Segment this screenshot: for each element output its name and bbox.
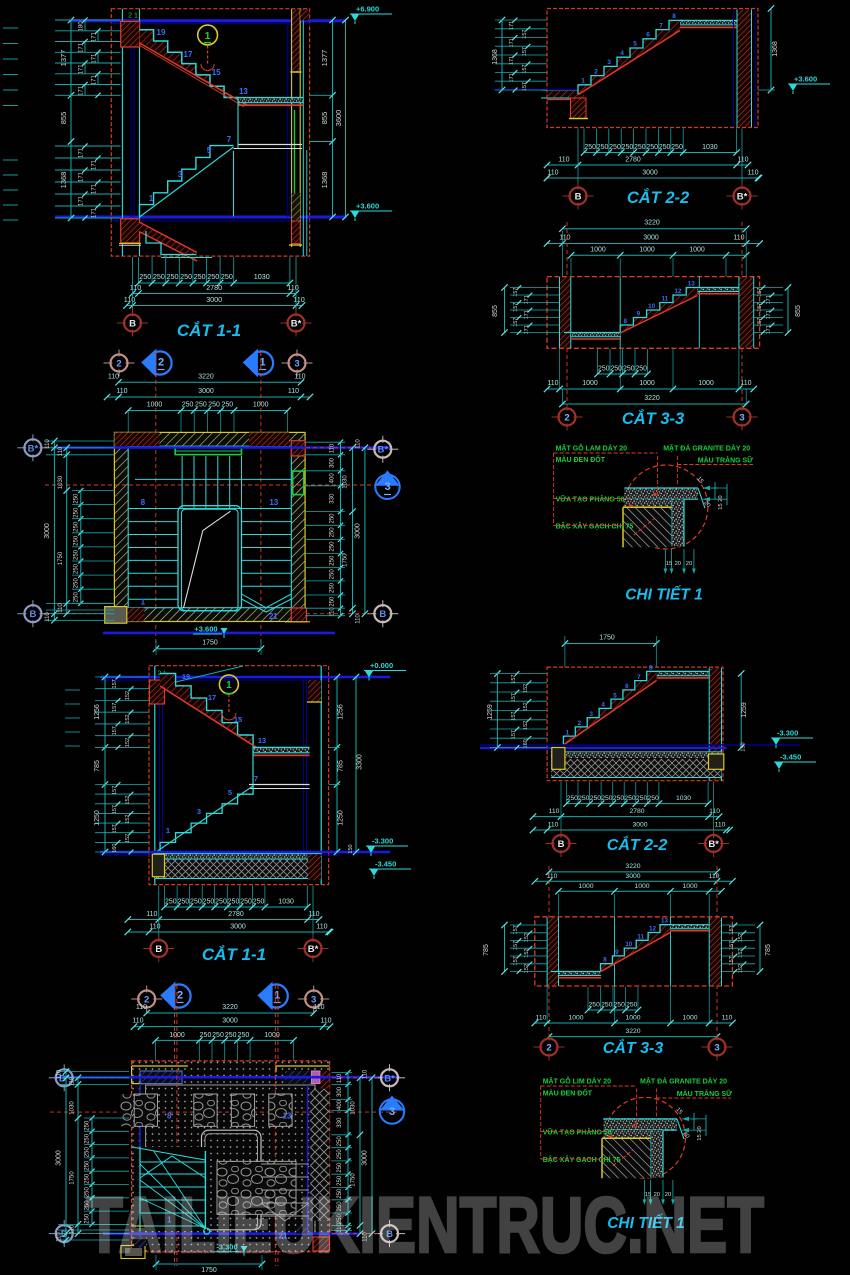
svg-text:110: 110 xyxy=(316,924,327,931)
svg-text:15: 15 xyxy=(666,561,672,567)
svg-text:3: 3 xyxy=(384,481,390,493)
svg-text:250: 250 xyxy=(601,1002,613,1009)
svg-text:9: 9 xyxy=(615,949,619,956)
svg-text:110: 110 xyxy=(559,235,570,242)
svg-text:171: 171 xyxy=(79,64,85,75)
svg-text:2780: 2780 xyxy=(629,808,644,815)
svg-text:110: 110 xyxy=(313,1004,324,1011)
svg-text:157: 157 xyxy=(729,941,735,950)
svg-text:+0.000: +0.000 xyxy=(370,661,393,670)
svg-text:110: 110 xyxy=(308,911,319,918)
svg-text:3300: 3300 xyxy=(357,754,364,770)
svg-text:6: 6 xyxy=(646,32,650,39)
svg-text:BẬC XÂY GẠCH CHỈ 75: BẬC XÂY GẠCH CHỈ 75 xyxy=(556,522,634,531)
svg-text:7: 7 xyxy=(227,135,232,144)
svg-text:110: 110 xyxy=(547,170,558,177)
svg-text:250: 250 xyxy=(584,144,596,151)
svg-text:3220: 3220 xyxy=(625,863,640,870)
svg-text:110: 110 xyxy=(294,373,305,380)
svg-text:250: 250 xyxy=(215,899,227,906)
svg-text:2: 2 xyxy=(158,357,164,369)
svg-text:110: 110 xyxy=(547,380,558,387)
svg-text:250: 250 xyxy=(647,795,659,802)
svg-text:110: 110 xyxy=(549,808,560,815)
svg-text:110: 110 xyxy=(558,157,569,164)
svg-text:250: 250 xyxy=(167,272,179,281)
svg-text:15: 15 xyxy=(212,68,221,77)
svg-text:3220: 3220 xyxy=(644,220,660,227)
svg-text:17: 17 xyxy=(208,693,216,702)
svg-text:250: 250 xyxy=(671,144,683,151)
svg-text:1030: 1030 xyxy=(676,795,691,802)
svg-text:171: 171 xyxy=(766,310,772,319)
svg-text:110: 110 xyxy=(320,1018,331,1025)
svg-text:110: 110 xyxy=(124,295,135,304)
svg-text:250: 250 xyxy=(208,402,220,409)
svg-text:110: 110 xyxy=(740,380,751,387)
svg-text:MÀU TRẮNG SỮ: MÀU TRẮNG SỮ xyxy=(677,1089,732,1098)
svg-text:3000: 3000 xyxy=(230,924,246,931)
svg-text:785: 785 xyxy=(338,760,345,772)
svg-text:1030: 1030 xyxy=(343,475,349,489)
svg-text:8: 8 xyxy=(141,498,146,507)
svg-text:1: 1 xyxy=(149,194,154,203)
svg-text:MẶT ĐÁ GRANITE DÀY 20: MẶT ĐÁ GRANITE DÀY 20 xyxy=(640,1077,727,1086)
svg-text:171: 171 xyxy=(79,195,85,206)
svg-text:CẮT 1-1: CẮT 1-1 xyxy=(177,321,241,340)
svg-text:8: 8 xyxy=(603,957,607,964)
svg-text:4: 4 xyxy=(620,50,624,57)
svg-text:250: 250 xyxy=(626,1002,638,1009)
svg-text:785: 785 xyxy=(765,944,772,956)
svg-text:B*: B* xyxy=(28,443,39,454)
svg-text:20: 20 xyxy=(686,561,692,567)
svg-text:10: 10 xyxy=(625,941,632,948)
svg-text:250: 250 xyxy=(85,1147,91,1158)
svg-text:250: 250 xyxy=(614,1002,626,1009)
svg-text:1259: 1259 xyxy=(741,702,748,718)
svg-text:19: 19 xyxy=(182,672,190,681)
svg-text:2780: 2780 xyxy=(228,911,244,918)
svg-text:250: 250 xyxy=(74,521,80,532)
svg-text:3220: 3220 xyxy=(625,1028,640,1035)
svg-text:1: 1 xyxy=(566,729,570,736)
svg-text:BẬC XÂY GẠCH CHỈ 75: BẬC XÂY GẠCH CHỈ 75 xyxy=(543,1155,621,1164)
svg-text:250: 250 xyxy=(207,272,219,281)
svg-text:250: 250 xyxy=(567,795,579,802)
svg-text:13: 13 xyxy=(269,498,278,507)
svg-text:13: 13 xyxy=(258,736,266,745)
svg-text:8: 8 xyxy=(672,13,676,20)
svg-text:1000: 1000 xyxy=(639,247,655,254)
svg-text:110: 110 xyxy=(536,1015,547,1022)
svg-text:250: 250 xyxy=(330,555,336,566)
svg-text:152: 152 xyxy=(125,738,131,747)
svg-text:1000: 1000 xyxy=(578,883,593,890)
svg-text:3000: 3000 xyxy=(642,170,658,177)
svg-text:250: 250 xyxy=(85,1120,91,1131)
svg-text:1030: 1030 xyxy=(70,1101,76,1115)
svg-text:B*: B* xyxy=(737,192,748,203)
svg-text:1368: 1368 xyxy=(320,172,329,189)
svg-text:171: 171 xyxy=(524,310,530,319)
svg-text:1750: 1750 xyxy=(58,551,64,565)
svg-text:171: 171 xyxy=(92,75,98,86)
svg-text:157: 157 xyxy=(513,303,519,312)
svg-text:250: 250 xyxy=(624,795,636,802)
svg-text:250: 250 xyxy=(139,272,151,281)
svg-text:171: 171 xyxy=(79,85,85,96)
svg-text:171: 171 xyxy=(524,325,530,334)
svg-text:250: 250 xyxy=(221,402,233,409)
svg-text:250: 250 xyxy=(337,1149,343,1160)
svg-text:110: 110 xyxy=(132,1018,143,1025)
svg-text:110: 110 xyxy=(363,1069,369,1079)
svg-text:250: 250 xyxy=(635,366,647,373)
svg-text:2: 2 xyxy=(578,720,582,727)
svg-text:250: 250 xyxy=(330,569,336,580)
svg-text:250: 250 xyxy=(330,582,336,593)
svg-text:8: 8 xyxy=(167,1112,172,1121)
svg-text:157: 157 xyxy=(511,712,517,721)
svg-text:157: 157 xyxy=(112,726,118,735)
svg-text:110: 110 xyxy=(57,1069,63,1079)
svg-text:2780: 2780 xyxy=(206,283,222,292)
svg-text:17: 17 xyxy=(184,50,193,59)
svg-text:110: 110 xyxy=(547,873,558,880)
svg-text:MẶT GỖ LAM DÀY 20: MẶT GỖ LAM DÀY 20 xyxy=(556,444,628,453)
svg-text:171: 171 xyxy=(92,207,98,218)
svg-text:12: 12 xyxy=(649,926,656,933)
svg-text:250: 250 xyxy=(74,578,80,589)
svg-text:1000: 1000 xyxy=(582,380,598,387)
svg-text:150: 150 xyxy=(348,844,354,853)
svg-text:157: 157 xyxy=(511,675,517,684)
svg-text:B*: B* xyxy=(291,319,302,330)
svg-text:1030: 1030 xyxy=(351,1101,357,1115)
svg-text:110: 110 xyxy=(733,235,744,242)
svg-text:157: 157 xyxy=(112,824,118,833)
svg-text:152: 152 xyxy=(125,834,131,843)
svg-text:152: 152 xyxy=(125,715,131,724)
svg-text:1000: 1000 xyxy=(568,1015,583,1022)
svg-text:11: 11 xyxy=(637,933,644,940)
svg-text:171: 171 xyxy=(524,295,530,304)
svg-text:110: 110 xyxy=(337,1073,343,1083)
svg-text:7: 7 xyxy=(637,674,641,681)
svg-text:171: 171 xyxy=(79,42,85,53)
svg-text:1000: 1000 xyxy=(264,1032,280,1039)
svg-text:110: 110 xyxy=(45,612,51,622)
svg-text:785: 785 xyxy=(483,944,490,956)
svg-text:855: 855 xyxy=(795,305,802,317)
svg-text:3: 3 xyxy=(739,413,744,424)
svg-text:171: 171 xyxy=(92,183,98,194)
svg-text:1000: 1000 xyxy=(689,247,705,254)
svg-text:250: 250 xyxy=(590,795,602,802)
svg-text:3000: 3000 xyxy=(362,1150,369,1166)
svg-text:1368: 1368 xyxy=(59,172,68,189)
svg-text:152: 152 xyxy=(125,691,131,700)
svg-text:157: 157 xyxy=(513,288,519,297)
svg-text:157: 157 xyxy=(112,679,118,688)
svg-text:250: 250 xyxy=(177,899,189,906)
svg-text:CẮT 2-2: CẮT 2-2 xyxy=(627,188,689,207)
svg-text:110: 110 xyxy=(355,439,361,449)
svg-text:110: 110 xyxy=(709,808,720,815)
svg-text:250: 250 xyxy=(225,1032,237,1039)
svg-text:330: 330 xyxy=(330,493,336,504)
svg-text:110: 110 xyxy=(293,295,304,304)
svg-text:11: 11 xyxy=(662,296,669,303)
svg-text:1: 1 xyxy=(581,78,585,85)
svg-text:1000: 1000 xyxy=(634,883,649,890)
svg-text:150: 150 xyxy=(741,742,747,751)
svg-text:250: 250 xyxy=(238,1032,250,1039)
svg-text:110: 110 xyxy=(45,439,51,449)
svg-text:250: 250 xyxy=(182,402,194,409)
svg-text:3000: 3000 xyxy=(44,523,51,539)
svg-text:330: 330 xyxy=(337,1117,343,1128)
svg-text:1750: 1750 xyxy=(70,1171,76,1185)
svg-text:250: 250 xyxy=(85,1133,91,1144)
svg-text:3600: 3600 xyxy=(334,110,343,127)
svg-text:B: B xyxy=(558,839,565,850)
svg-text:110: 110 xyxy=(136,1004,147,1011)
svg-text:2 1: 2 1 xyxy=(128,13,138,20)
svg-text:250: 250 xyxy=(337,1136,343,1147)
svg-text:3: 3 xyxy=(389,1106,395,1118)
svg-text:110: 110 xyxy=(737,157,748,164)
svg-text:B: B xyxy=(379,609,386,620)
svg-text:250: 250 xyxy=(337,1162,343,1173)
svg-text:1030: 1030 xyxy=(278,899,294,906)
svg-text:B: B xyxy=(129,319,136,330)
svg-text:1000: 1000 xyxy=(698,380,714,387)
svg-text:7: 7 xyxy=(659,22,663,29)
svg-text:13: 13 xyxy=(688,281,695,288)
svg-text:6: 6 xyxy=(625,683,629,690)
svg-text:CẮT 2-2: CẮT 2-2 xyxy=(607,835,668,854)
svg-text:250: 250 xyxy=(646,144,658,151)
svg-text:1000: 1000 xyxy=(147,402,163,409)
svg-text:171: 171 xyxy=(79,147,85,158)
svg-text:B*: B* xyxy=(378,445,389,456)
svg-text:3: 3 xyxy=(589,711,593,718)
svg-text:157: 157 xyxy=(112,703,118,712)
svg-text:250: 250 xyxy=(74,507,80,518)
svg-text:1030: 1030 xyxy=(58,475,64,489)
svg-text:13: 13 xyxy=(282,1112,291,1121)
svg-text:8: 8 xyxy=(623,318,627,325)
svg-text:157: 157 xyxy=(513,941,519,950)
svg-text:4: 4 xyxy=(601,702,605,709)
svg-text:157: 157 xyxy=(757,303,763,312)
svg-text:250: 250 xyxy=(74,549,80,560)
svg-text:1368: 1368 xyxy=(492,49,499,65)
svg-text:+3.600: +3.600 xyxy=(356,202,379,211)
svg-text:9: 9 xyxy=(637,311,641,318)
svg-text:3: 3 xyxy=(607,59,611,66)
svg-text:250: 250 xyxy=(598,366,610,373)
svg-text:171: 171 xyxy=(79,171,85,182)
svg-text:21: 21 xyxy=(269,612,278,621)
svg-text:CHI TIẾT 1: CHI TIẾT 1 xyxy=(625,585,703,603)
svg-text:157: 157 xyxy=(757,318,763,327)
svg-text:1000: 1000 xyxy=(625,1015,640,1022)
svg-text:3000: 3000 xyxy=(354,523,361,539)
svg-text:CẮT 1-1: CẮT 1-1 xyxy=(202,945,266,964)
svg-text:B: B xyxy=(29,609,36,620)
svg-text:12: 12 xyxy=(675,288,682,295)
svg-text:250: 250 xyxy=(228,899,240,906)
svg-text:250: 250 xyxy=(200,1032,212,1039)
svg-text:250: 250 xyxy=(74,493,80,504)
svg-text:15 20: 15 20 xyxy=(697,1126,703,1141)
svg-text:400: 400 xyxy=(337,1099,343,1110)
svg-text:2: 2 xyxy=(564,413,569,424)
svg-text:785: 785 xyxy=(94,760,101,772)
svg-text:250: 250 xyxy=(240,899,252,906)
svg-text:855: 855 xyxy=(59,112,68,125)
svg-text:1000: 1000 xyxy=(590,247,606,254)
svg-text:1000: 1000 xyxy=(682,883,697,890)
svg-text:-3.300: -3.300 xyxy=(777,729,798,738)
svg-text:250: 250 xyxy=(623,366,635,373)
svg-text:157: 157 xyxy=(757,288,763,297)
svg-text:250: 250 xyxy=(203,899,215,906)
svg-text:1: 1 xyxy=(226,680,232,691)
svg-text:7: 7 xyxy=(254,774,258,783)
svg-text:110: 110 xyxy=(548,822,559,829)
svg-text:-3.450: -3.450 xyxy=(780,753,801,762)
svg-text:1750: 1750 xyxy=(343,553,349,567)
svg-text:250: 250 xyxy=(330,596,336,607)
svg-text:2: 2 xyxy=(116,359,121,370)
svg-text:250: 250 xyxy=(85,1160,91,1171)
svg-text:20: 20 xyxy=(675,561,681,567)
svg-text:171: 171 xyxy=(92,31,98,42)
svg-text:3000: 3000 xyxy=(632,822,647,829)
svg-text:13: 13 xyxy=(661,918,668,925)
svg-text:250: 250 xyxy=(589,1002,601,1009)
svg-text:250: 250 xyxy=(190,899,202,906)
svg-text:5: 5 xyxy=(613,692,617,699)
svg-text:VỮA TẠO PHẲNG 50: VỮA TẠO PHẲNG 50 xyxy=(556,495,625,504)
svg-text:2: 2 xyxy=(177,990,183,1002)
svg-text:MẶT GỖ LIM DÀY 20: MẶT GỖ LIM DÀY 20 xyxy=(543,1077,611,1086)
svg-text:300: 300 xyxy=(337,1086,343,1097)
svg-text:152: 152 xyxy=(125,815,131,824)
svg-text:110: 110 xyxy=(130,283,141,292)
svg-text:250: 250 xyxy=(153,272,165,281)
svg-text:2780: 2780 xyxy=(625,157,641,164)
svg-text:110: 110 xyxy=(70,1224,76,1234)
svg-text:1030: 1030 xyxy=(254,272,270,281)
svg-text:250: 250 xyxy=(330,541,336,552)
svg-text:110: 110 xyxy=(709,873,720,880)
svg-text:110: 110 xyxy=(146,911,157,918)
svg-text:855: 855 xyxy=(320,112,329,125)
svg-text:250: 250 xyxy=(609,144,621,151)
svg-text:110: 110 xyxy=(116,388,127,395)
svg-text:250: 250 xyxy=(597,144,609,151)
svg-text:3: 3 xyxy=(197,807,201,816)
svg-text:171: 171 xyxy=(766,295,772,304)
svg-text:110: 110 xyxy=(287,283,298,292)
svg-text:180: 180 xyxy=(79,21,85,32)
svg-text:TAILIEUKIENTRUC.NET: TAILIEUKIENTRUC.NET xyxy=(86,1180,764,1269)
svg-text:3: 3 xyxy=(294,359,299,370)
svg-text:250: 250 xyxy=(165,899,177,906)
svg-text:3: 3 xyxy=(714,1043,719,1054)
svg-text:250: 250 xyxy=(180,272,192,281)
svg-text:250: 250 xyxy=(330,513,336,524)
svg-text:110: 110 xyxy=(330,443,336,453)
svg-text:855: 855 xyxy=(492,305,499,317)
svg-text:B*: B* xyxy=(384,1073,395,1084)
svg-text:3220: 3220 xyxy=(644,395,660,402)
svg-text:3220: 3220 xyxy=(198,373,214,380)
svg-text:157: 157 xyxy=(112,786,118,795)
svg-text:3220: 3220 xyxy=(222,1004,238,1011)
svg-text:1: 1 xyxy=(141,598,146,607)
svg-text:250: 250 xyxy=(601,795,613,802)
svg-text:+3.600: +3.600 xyxy=(794,75,817,84)
svg-text:1: 1 xyxy=(166,826,170,835)
svg-text:250: 250 xyxy=(74,563,80,574)
svg-text:15 20: 15 20 xyxy=(718,495,724,510)
svg-text:B*: B* xyxy=(308,944,319,955)
svg-text:250: 250 xyxy=(194,272,206,281)
svg-text:110: 110 xyxy=(108,373,119,380)
svg-text:1750: 1750 xyxy=(599,635,615,642)
svg-text:5: 5 xyxy=(228,788,232,797)
svg-text:VỮA TẠO PHẲNG 50: VỮA TẠO PHẲNG 50 xyxy=(543,1128,612,1137)
svg-text:10: 10 xyxy=(648,303,655,310)
svg-text:MÀU TRẮNG SỮ: MÀU TRẮNG SỮ xyxy=(698,455,753,464)
svg-text:160: 160 xyxy=(112,844,118,853)
svg-text:B: B xyxy=(155,944,162,955)
svg-text:1030: 1030 xyxy=(702,144,718,151)
svg-text:13: 13 xyxy=(239,87,248,96)
svg-text:110: 110 xyxy=(715,822,726,829)
svg-text:250: 250 xyxy=(212,1032,224,1039)
svg-text:3000: 3000 xyxy=(625,873,640,880)
svg-text:250: 250 xyxy=(74,592,80,603)
svg-text:300: 300 xyxy=(330,457,336,468)
svg-text:3000: 3000 xyxy=(198,388,214,395)
svg-text:110: 110 xyxy=(70,1076,76,1086)
svg-text:110: 110 xyxy=(58,603,64,613)
svg-text:157: 157 xyxy=(513,318,519,327)
svg-text:1256: 1256 xyxy=(338,704,345,720)
svg-text:250: 250 xyxy=(636,795,648,802)
svg-text:250: 250 xyxy=(195,402,207,409)
svg-text:1000: 1000 xyxy=(682,1015,697,1022)
svg-text:19: 19 xyxy=(157,28,166,37)
svg-text:250: 250 xyxy=(659,144,671,151)
svg-text:3000: 3000 xyxy=(206,295,222,304)
svg-text:1000: 1000 xyxy=(639,380,655,387)
svg-text:1250: 1250 xyxy=(338,810,345,826)
svg-text:1377: 1377 xyxy=(320,50,329,67)
svg-text:110: 110 xyxy=(722,1015,733,1022)
svg-text:1259: 1259 xyxy=(487,704,494,720)
svg-text:B*: B* xyxy=(708,839,719,850)
svg-text:250: 250 xyxy=(330,527,336,538)
svg-text:1: 1 xyxy=(259,357,265,369)
